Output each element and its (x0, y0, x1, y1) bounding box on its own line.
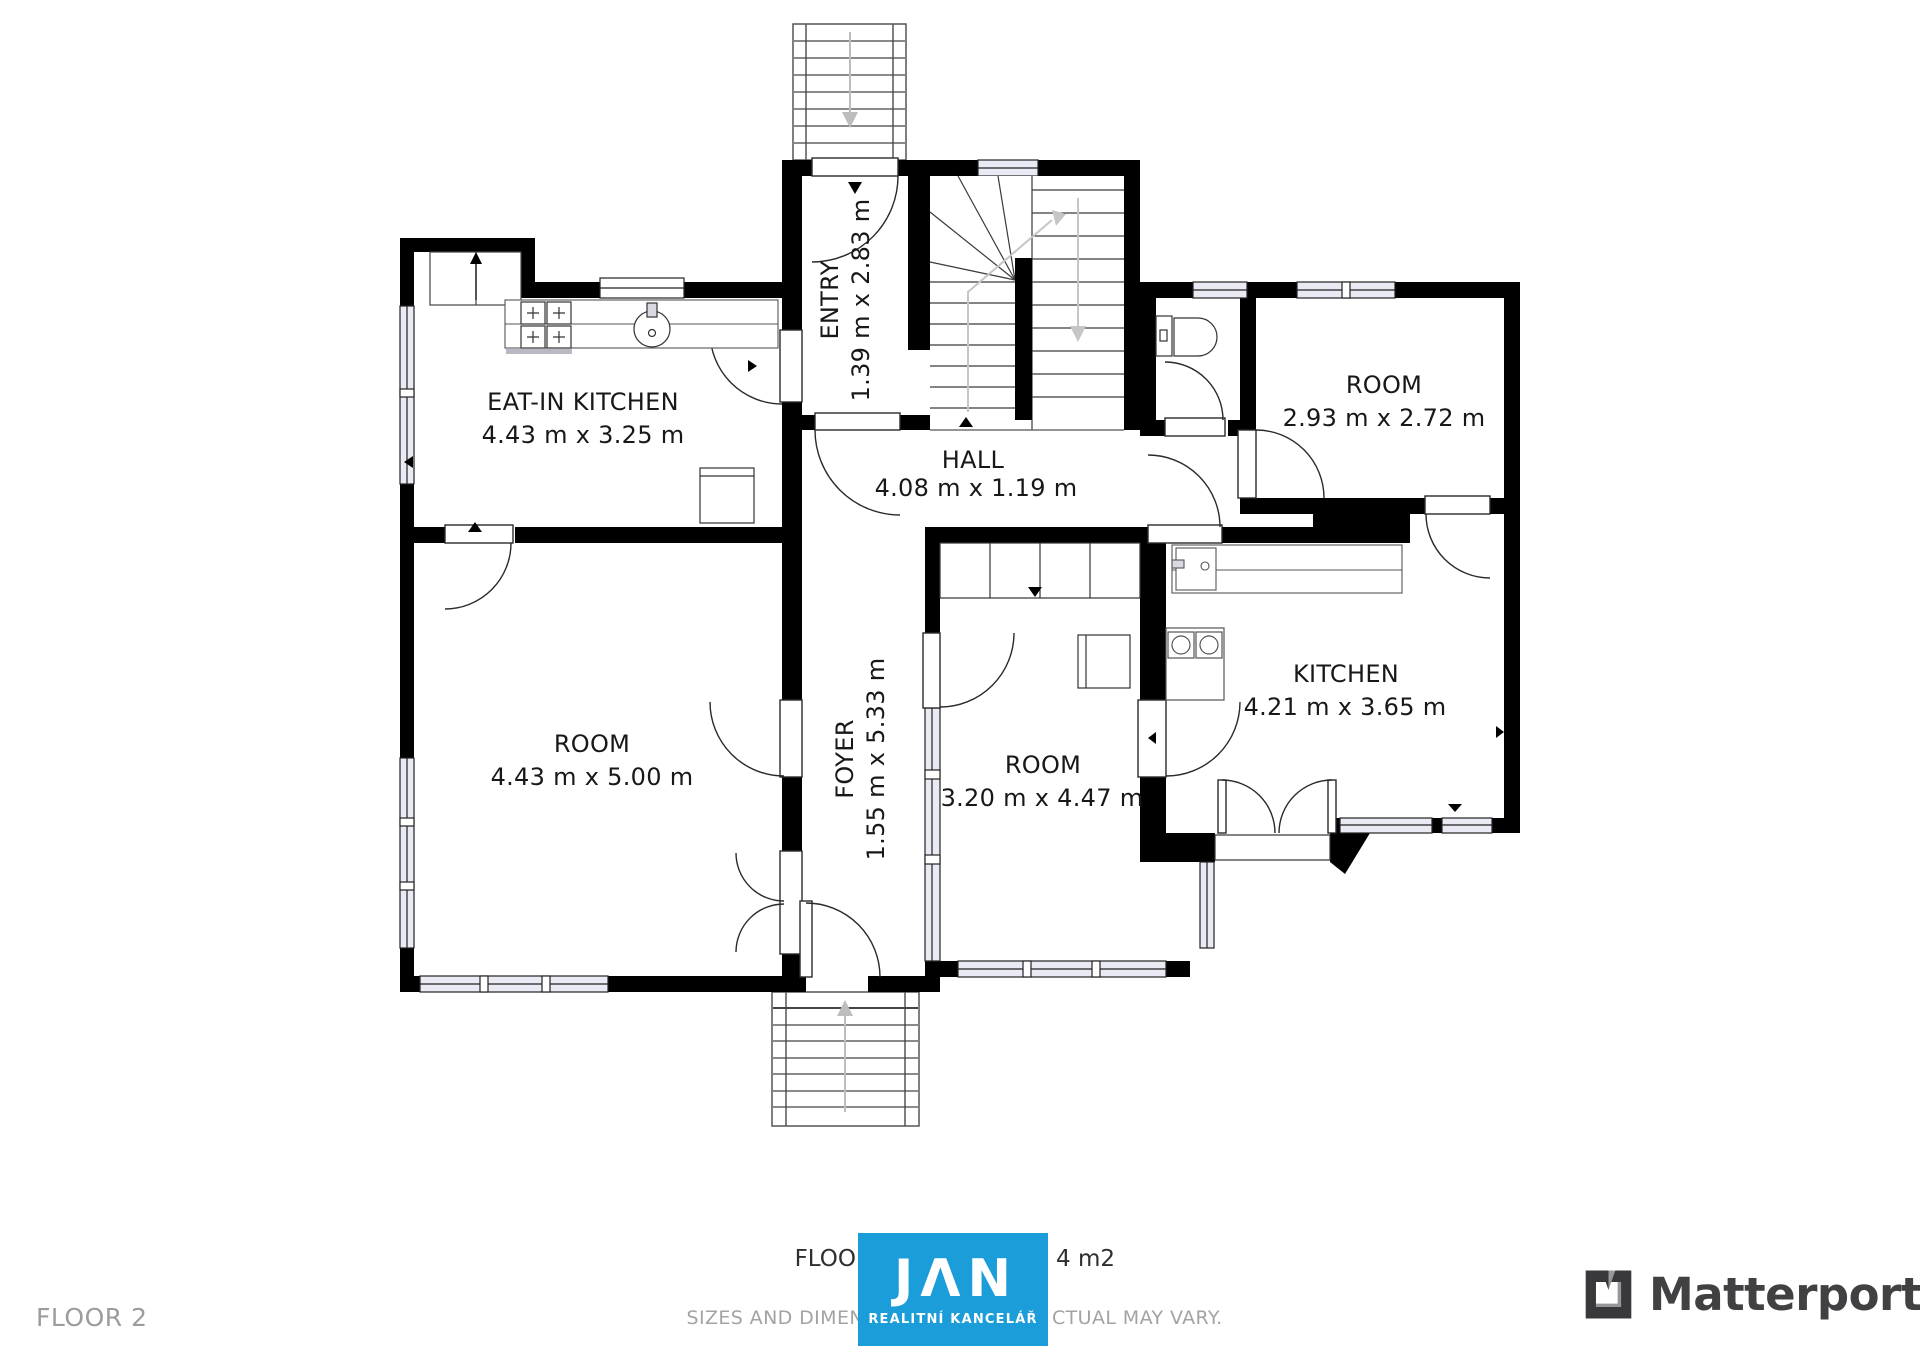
window (1340, 818, 1432, 833)
label-eat-in-kitchen: EAT-IN KITCHEN 4.43 m x 3.25 m (482, 388, 685, 449)
closet (430, 252, 521, 305)
window (958, 961, 1166, 977)
svg-text:EAT-IN KITCHEN: EAT-IN KITCHEN (487, 388, 679, 416)
label-room-top-right: ROOM 2.93 m x 2.72 m (1283, 371, 1486, 432)
svg-text:KITCHEN: KITCHEN (1293, 660, 1399, 688)
door (923, 633, 1014, 708)
door (1238, 430, 1324, 498)
matterport-icon (1580, 1266, 1637, 1323)
svg-text:ENTRY: ENTRY (816, 260, 844, 339)
svg-text:4.43 m x 3.25 m: 4.43 m x 3.25 m (482, 421, 685, 449)
svg-text:4.43 m x 5.00 m: 4.43 m x 5.00 m (491, 763, 694, 791)
svg-text:2.93 m x 2.72 m: 2.93 m x 2.72 m (1283, 404, 1486, 432)
label-kitchen: KITCHEN 4.21 m x 3.65 m (1244, 660, 1447, 721)
window (420, 976, 608, 992)
door (1148, 455, 1222, 543)
svg-text:1.39 m x 2.83 m: 1.39 m x 2.83 m (847, 199, 875, 402)
label-foyer: FOYER 1.55 m x 5.33 m (831, 658, 890, 861)
glass-partition (925, 708, 940, 961)
disclaimer-text-left: SIZES AND DIMEN (0, 1307, 864, 1329)
window (1297, 282, 1395, 298)
floorplan-drawing: EAT-IN KITCHEN 4.43 m x 3.25 m ENTRY 1.3… (0, 0, 1920, 1357)
disclaimer-text-right: CTUAL MAY VARY. (1052, 1307, 1223, 1329)
bay-sill (1215, 835, 1330, 860)
label-hall: HALL 4.08 m x 1.19 m (875, 446, 1078, 502)
svg-text:1.55 m x 5.33 m: 1.55 m x 5.33 m (862, 658, 890, 861)
svg-text:4.08 m x 1.19 m: 4.08 m x 1.19 m (875, 474, 1078, 502)
window (600, 278, 684, 298)
door (1165, 362, 1225, 436)
jan-logo-subtitle: REALITNÍ KANCELÁŘ (868, 1312, 1037, 1327)
fridge-icon (700, 468, 754, 523)
svg-text:ROOM: ROOM (1346, 371, 1422, 399)
label-room-left: ROOM 4.43 m x 5.00 m (491, 730, 694, 791)
stairs-top (793, 24, 906, 160)
floor-area-text-left: FLOO (0, 1246, 856, 1272)
svg-text:ROOM: ROOM (1005, 751, 1081, 779)
door (1425, 496, 1490, 578)
kitchen-counter-2 (1172, 545, 1402, 593)
svg-text:HALL: HALL (942, 446, 1005, 474)
door (445, 525, 513, 609)
table (1078, 635, 1130, 688)
stove-icon (1166, 628, 1224, 700)
label-entry: ENTRY 1.39 m x 2.83 m (816, 199, 875, 402)
double-door (736, 851, 802, 954)
window (1442, 818, 1492, 833)
svg-text:4.21 m x 3.65 m: 4.21 m x 3.65 m (1244, 693, 1447, 721)
window (978, 160, 1038, 176)
matterport-logo: Matterport (1580, 1266, 1920, 1323)
jan-logo-text: JΛN (894, 1253, 1018, 1305)
jan-realty-logo: JΛN REALITNÍ KANCELÁŘ (858, 1233, 1048, 1346)
label-room-middle: ROOM 3.20 m x 4.47 m (941, 751, 1144, 812)
door (800, 901, 880, 977)
window (400, 758, 414, 948)
window (1193, 282, 1247, 298)
stairs-interior (930, 176, 1124, 430)
double-door (1218, 780, 1336, 833)
svg-text:3.20 m x 4.47 m: 3.20 m x 4.47 m (941, 784, 1144, 812)
stairs-bottom (772, 992, 919, 1126)
svg-text:FOYER: FOYER (831, 719, 859, 798)
toilet-icon (1156, 316, 1217, 356)
svg-text:ROOM: ROOM (554, 730, 630, 758)
window (1200, 862, 1214, 948)
floorplan-page: EAT-IN KITCHEN 4.43 m x 3.25 m ENTRY 1.3… (0, 0, 1920, 1357)
door (710, 700, 802, 777)
matterport-wordmark: Matterport (1649, 1268, 1920, 1321)
floor-area-text-right: 4 m2 (1056, 1246, 1115, 1272)
